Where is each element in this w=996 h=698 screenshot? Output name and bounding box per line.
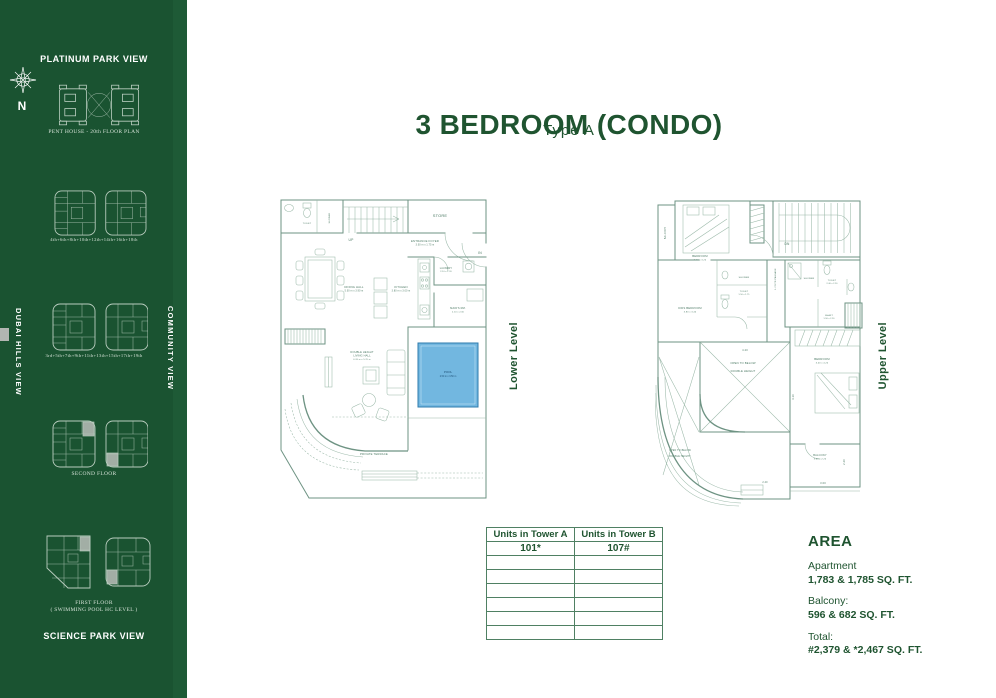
unit-number-tower-b: 107# — [575, 542, 663, 556]
room-dim-living: 6.20 m x 5.70 m — [353, 359, 370, 361]
room-dim-bedroom-2: 3.40 x 4.20 — [816, 362, 829, 364]
mini-plan-caption-odd-floors: 3rd+5th+7th+9th+11th+13th+15th+17th+19th — [4, 353, 184, 358]
dim-410: 4.10 — [791, 394, 795, 400]
compass-n-label: N — [18, 99, 27, 113]
room-label-shower-1: SHOWER — [739, 277, 750, 279]
room-dim-laundry: 2.10 x 1.20 — [440, 271, 452, 273]
units-table-empty-row — [487, 584, 663, 598]
room-dim-kitchen: 3.80 m x 3.00 m — [392, 291, 411, 293]
room-label-toilet-1: TOILET — [740, 291, 749, 293]
room-label-kitchen: KITCHEN — [394, 285, 407, 289]
pool-label: POOL — [444, 370, 453, 374]
sidebar-label-dubai-hills-view: DUBAI HILLS VIEW — [14, 308, 23, 396]
room-label-kids-bedroom: KIDS BEDROOM — [678, 306, 702, 310]
dim-220: 2.20 — [842, 459, 846, 465]
mini-plan-caption-first-floor-1: FIRST FLOOR — [4, 600, 184, 606]
pool-dim: 2.50 m x 3.50 m — [440, 376, 457, 378]
mini-plan-second-floor — [52, 420, 148, 468]
dim-240: 2.40 — [762, 481, 768, 484]
upper-level-label: Upper Level — [877, 322, 889, 389]
lower-level-label: Lower Level — [508, 322, 520, 390]
page-subtitle: Type A — [369, 122, 769, 139]
mini-plan-caption-even-floors: 4th+6th+8th+10th+12th+14th+16th+18th — [4, 237, 184, 242]
mini-plan-even-floors — [52, 190, 148, 236]
units-table-empty-row — [487, 612, 663, 626]
units-header-tower-a: Units in Tower A — [487, 528, 575, 542]
room-label-balcony-1: BALCONY — [664, 227, 667, 240]
room-dim-balcony-2: 3.60 x 2.20 — [814, 458, 827, 460]
room-dim-toilet-1: 1.50 x 1.75 — [738, 294, 749, 296]
room-label-shower-2: SHOWER — [804, 278, 815, 280]
area-balcony-label: Balcony: — [808, 595, 993, 609]
mini-plan-caption-first-floor-2: ( SWIMMING POOL HC LEVEL ) — [4, 607, 184, 613]
room-label-laundry: LAUNDRY — [440, 267, 453, 270]
room-dim-toilet-2: 2.40 x 2.20 — [826, 283, 837, 285]
terrace-label: PRIVATE TERRACE — [360, 452, 388, 456]
brochure-page: N PLATINUM PARK VIEW PENT — [0, 0, 996, 698]
passage-label: 1.2 MTR PASSAGE — [774, 268, 777, 290]
unit-number-tower-a: 101* — [487, 542, 575, 556]
sidebar-heading-platinum-park-view: PLATINUM PARK VIEW — [14, 54, 174, 64]
units-table-header-row: Units in Tower A Units in Tower B — [487, 528, 663, 542]
room-dim-kids-bedroom: 3.80 x 3.40 — [684, 311, 697, 313]
sidebar: N PLATINUM PARK VIEW PENT — [0, 0, 187, 698]
units-header-tower-b: Units in Tower B — [575, 528, 663, 542]
sidebar-accent-strip — [173, 0, 187, 698]
sidebar-label-community-view: COMMUNITY VIEW — [166, 306, 175, 390]
units-table-empty-row — [487, 556, 663, 570]
mini-plan-odd-floors — [52, 303, 148, 351]
mini-plan-caption-second-floor: SECOND FLOOR — [4, 471, 184, 477]
room-label-maids: MAID'S RM. — [450, 306, 466, 310]
area-heading: AREA — [808, 533, 993, 550]
open-below-1b: DOUBLE HEIGHT — [731, 369, 756, 373]
stairs-up-label: UP — [348, 238, 354, 242]
units-table-empty-row — [487, 626, 663, 640]
units-table-empty-row — [487, 598, 663, 612]
room-dim-maids: 2.10 x 2.00 — [452, 311, 465, 313]
dim-420: 4.20 — [742, 348, 748, 352]
area-balcony-value: 596 & 682 SQ. FT. — [808, 609, 993, 623]
area-apartment-label: Apartment — [808, 560, 993, 574]
upper-level-floorplan: BALCONY BEDROOM 3.40 x 3.20 DN SHOWER TO… — [655, 197, 869, 509]
area-apartment-value: 1,783 & 1,785 SQ. FT. — [808, 574, 993, 588]
open-below-1a: OPEN TO BELOW — [730, 361, 756, 365]
room-label-dining-hall: DINING HALL — [344, 285, 364, 289]
room-label-entrance-foyer: ENTRANCE FOYER — [411, 239, 439, 243]
units-table-row: 101* 107# — [487, 542, 663, 556]
stairs-dn-label: DN — [785, 242, 790, 246]
area-total-value: #2,379 & *2,467 SQ. FT. — [808, 644, 993, 658]
shaft-label: SHAFT — [825, 314, 833, 317]
units-table: Units in Tower A Units in Tower B 101* 1… — [486, 527, 663, 640]
room-dim-entrance-foyer: 3.00 m x 1.75 m — [416, 245, 435, 247]
area-total: Total: #2,379 & *2,467 SQ. FT. — [808, 631, 993, 658]
compass-icon: N — [8, 66, 38, 114]
lower-level-floorplan: TOILET SHOWER UP STORE ENTRANCE FOYER 3.… — [277, 197, 492, 509]
area-section: AREA Apartment 1,783 & 1,785 SQ. FT. Bal… — [808, 533, 993, 666]
sidebar-heading-science-park-view: SCIENCE PARK VIEW — [14, 631, 174, 641]
area-balcony: Balcony: 596 & 682 SQ. FT. — [808, 595, 993, 622]
mini-plan-penthouse — [54, 83, 144, 127]
room-label-bedroom-2: BEDROOM — [814, 357, 830, 361]
shaft-dim: 1.90 x 2.20 — [823, 318, 834, 320]
area-apartment: Apartment 1,783 & 1,785 SQ. FT. — [808, 560, 993, 587]
room-label-shower: SHOWER — [329, 212, 331, 223]
room-label-toilet-2: TOILET — [828, 280, 837, 282]
open-below-2a: OPEN TO BELOW — [669, 449, 692, 452]
room-label-toilet: TOILET — [303, 223, 312, 225]
entry-in-label: IN — [478, 251, 482, 255]
room-label-bedroom-1: BEDROOM — [692, 254, 708, 258]
room-label-living-2: LIVING HALL — [353, 353, 371, 357]
open-below-2b: DOUBLE HEIGHT — [669, 455, 691, 458]
area-total-label: Total: — [808, 631, 993, 645]
mini-plan-first-floor — [44, 533, 152, 591]
dim-300: 3.00 — [820, 481, 826, 485]
room-dim-dining-hall: 5.00 m x 3.90 m — [345, 291, 364, 293]
room-label-store: STORE — [433, 213, 448, 218]
room-label-balcony-2: BALCONY — [813, 453, 827, 457]
units-table-empty-row — [487, 570, 663, 584]
mini-plan-caption-penthouse: PENT HOUSE - 20th FLOOR PLAN — [4, 129, 184, 135]
page-edge-notch — [0, 328, 9, 341]
room-label-living-1: DOUBLE HEIGHT — [350, 350, 373, 354]
